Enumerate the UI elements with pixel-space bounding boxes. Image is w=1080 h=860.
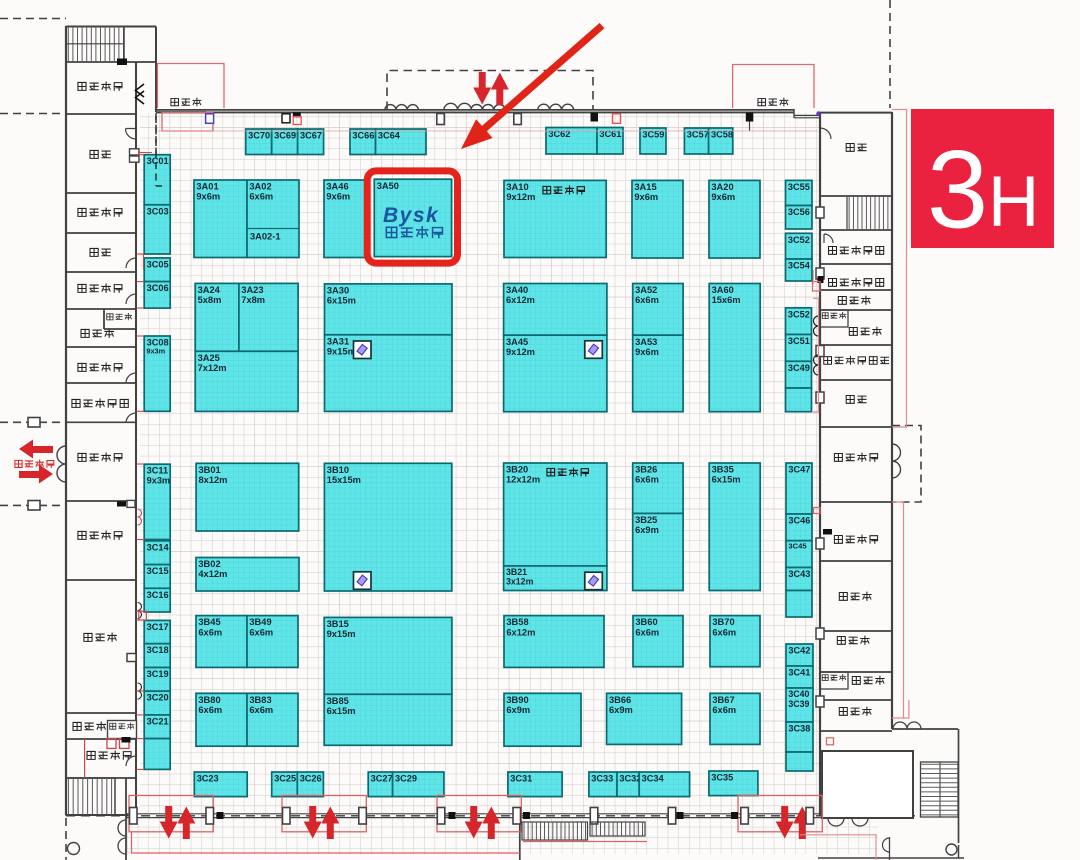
- svg-text:3C32: 3C32: [619, 774, 641, 784]
- svg-text:3C01: 3C01: [147, 156, 169, 166]
- svg-text:8x12m: 8x12m: [199, 475, 228, 485]
- svg-text:3C15: 3C15: [147, 566, 169, 576]
- svg-text:6x6m: 6x6m: [249, 705, 273, 715]
- svg-text:15x15m: 15x15m: [327, 475, 361, 485]
- svg-text:6x6m: 6x6m: [635, 627, 659, 637]
- svg-text:3B58: 3B58: [506, 617, 528, 627]
- svg-text:6x12m: 6x12m: [506, 295, 535, 305]
- svg-text:9x12m: 9x12m: [506, 192, 535, 202]
- svg-text:3B35: 3B35: [712, 465, 734, 475]
- svg-text:3A02: 3A02: [249, 182, 271, 192]
- svg-text:9x3m: 9x3m: [147, 476, 171, 486]
- svg-text:3A25: 3A25: [198, 353, 220, 363]
- svg-text:3C41: 3C41: [788, 668, 810, 678]
- svg-text:3C14: 3C14: [147, 542, 170, 552]
- svg-text:3C55: 3C55: [788, 182, 810, 192]
- svg-text:3C27: 3C27: [371, 774, 393, 784]
- svg-text:3C56: 3C56: [788, 207, 810, 217]
- svg-text:3C51: 3C51: [788, 336, 810, 346]
- svg-text:3C42: 3C42: [788, 646, 810, 656]
- svg-text:3B67: 3B67: [712, 695, 734, 705]
- svg-text:3C33: 3C33: [591, 774, 613, 784]
- svg-text:3C39: 3C39: [788, 699, 809, 709]
- svg-text:6x6m: 6x6m: [635, 295, 659, 305]
- svg-text:6x15m: 6x15m: [327, 706, 356, 716]
- svg-text:3A45: 3A45: [506, 337, 528, 347]
- svg-text:3A60: 3A60: [712, 285, 734, 295]
- svg-text:3C35: 3C35: [711, 773, 733, 783]
- svg-text:3C49: 3C49: [788, 363, 810, 373]
- svg-text:7x8m: 7x8m: [241, 295, 265, 305]
- svg-text:3C05: 3C05: [147, 259, 169, 269]
- svg-text:3C62: 3C62: [548, 129, 570, 139]
- svg-text:9x6m: 9x6m: [711, 192, 735, 202]
- svg-text:3C19: 3C19: [147, 669, 169, 679]
- svg-text:3A23: 3A23: [241, 285, 263, 295]
- svg-text:3A10: 3A10: [506, 182, 528, 192]
- svg-text:9x15m: 9x15m: [327, 629, 356, 639]
- svg-text:6x9m: 6x9m: [635, 525, 659, 535]
- svg-text:9x6m: 9x6m: [326, 192, 350, 202]
- svg-text:3C40: 3C40: [788, 689, 809, 699]
- svg-text:7x12m: 7x12m: [198, 363, 227, 373]
- svg-text:3C34: 3C34: [642, 774, 665, 784]
- svg-text:3B01: 3B01: [199, 465, 221, 475]
- svg-text:3B83: 3B83: [249, 695, 271, 705]
- svg-text:6x6m: 6x6m: [198, 627, 222, 637]
- svg-text:3B20: 3B20: [506, 465, 528, 475]
- svg-text:3A15: 3A15: [634, 182, 656, 192]
- svg-text:3: 3: [927, 129, 988, 252]
- svg-text:3C46: 3C46: [788, 516, 810, 526]
- svg-text:3B80: 3B80: [198, 695, 220, 705]
- svg-text:3C61: 3C61: [599, 129, 621, 139]
- svg-text:3B15: 3B15: [327, 619, 349, 629]
- svg-text:3C26: 3C26: [300, 774, 322, 784]
- svg-text:3C06: 3C06: [147, 283, 169, 293]
- svg-text:3B25: 3B25: [635, 515, 657, 525]
- svg-text:5x8m: 5x8m: [198, 295, 222, 305]
- svg-text:3C11: 3C11: [147, 466, 168, 476]
- svg-text:9x12m: 9x12m: [506, 347, 535, 357]
- svg-text:3x12m: 3x12m: [506, 577, 534, 587]
- svg-text:6x9m: 6x9m: [609, 705, 633, 715]
- svg-text:4x12m: 4x12m: [198, 569, 227, 579]
- svg-text:3B66: 3B66: [609, 695, 631, 705]
- svg-text:3B70: 3B70: [712, 617, 734, 627]
- svg-text:6x12m: 6x12m: [506, 627, 535, 637]
- svg-text:3C16: 3C16: [147, 590, 169, 600]
- svg-text:3A24: 3A24: [198, 285, 221, 295]
- svg-text:3B26: 3B26: [635, 465, 657, 475]
- svg-text:3A30: 3A30: [327, 286, 349, 296]
- svg-text:6x9m: 6x9m: [506, 705, 530, 715]
- svg-text:3C52: 3C52: [788, 235, 810, 245]
- svg-text:3C70: 3C70: [248, 131, 270, 141]
- svg-text:9x6m: 9x6m: [634, 192, 658, 202]
- svg-text:3A46: 3A46: [326, 182, 348, 192]
- svg-text:3C03: 3C03: [147, 206, 169, 216]
- svg-text:3C69: 3C69: [274, 131, 296, 141]
- svg-text:3C54: 3C54: [788, 261, 811, 271]
- svg-text:3A31: 3A31: [327, 336, 349, 346]
- svg-text:3A20: 3A20: [711, 182, 733, 192]
- svg-text:6x6m: 6x6m: [712, 705, 736, 715]
- svg-text:3C47: 3C47: [788, 465, 810, 475]
- svg-text:3B85: 3B85: [327, 696, 349, 706]
- svg-text:3C18: 3C18: [147, 645, 169, 655]
- svg-text:3C66: 3C66: [352, 131, 374, 141]
- svg-text:3B02: 3B02: [198, 559, 220, 569]
- svg-text:12x12m: 12x12m: [506, 475, 540, 485]
- svg-text:3A53: 3A53: [635, 337, 657, 347]
- svg-text:3A52: 3A52: [635, 285, 657, 295]
- svg-text:6x15m: 6x15m: [712, 475, 741, 485]
- svg-text:3C23: 3C23: [197, 774, 219, 784]
- svg-text:6x6m: 6x6m: [249, 192, 273, 202]
- svg-text:6x6m: 6x6m: [198, 705, 222, 715]
- svg-text:3B21: 3B21: [506, 567, 527, 577]
- svg-text:3C64: 3C64: [378, 131, 401, 141]
- svg-text:3C38: 3C38: [788, 724, 810, 734]
- svg-text:6x6m: 6x6m: [712, 627, 736, 637]
- svg-text:6x6m: 6x6m: [635, 475, 659, 485]
- svg-text:3C17: 3C17: [147, 622, 169, 632]
- svg-text:9x3m: 9x3m: [146, 347, 165, 356]
- svg-text:9x6m: 9x6m: [635, 347, 659, 357]
- svg-text:3C25: 3C25: [274, 774, 296, 784]
- svg-text:3C43: 3C43: [788, 569, 810, 579]
- svg-text:6x15m: 6x15m: [327, 296, 356, 306]
- svg-text:9x6m: 9x6m: [196, 192, 220, 202]
- svg-text:3C29: 3C29: [395, 774, 417, 784]
- svg-text:3A50: 3A50: [377, 181, 399, 191]
- svg-text:3B60: 3B60: [635, 617, 657, 627]
- svg-text:3C20: 3C20: [147, 693, 169, 703]
- svg-text:3A02-1: 3A02-1: [250, 232, 281, 242]
- svg-text:3C67: 3C67: [300, 131, 322, 141]
- svg-text:3C45: 3C45: [788, 542, 807, 551]
- svg-text:3C52: 3C52: [788, 309, 810, 319]
- svg-text:9x15m: 9x15m: [327, 347, 356, 357]
- svg-text:6x6m: 6x6m: [249, 627, 273, 637]
- svg-text:3C31: 3C31: [510, 774, 532, 784]
- svg-text:3B10: 3B10: [327, 465, 349, 475]
- svg-text:3C21: 3C21: [147, 716, 169, 726]
- svg-text:3A01: 3A01: [196, 182, 218, 192]
- svg-text:15x6m: 15x6m: [712, 295, 741, 305]
- svg-text:3B49: 3B49: [249, 617, 271, 627]
- svg-text:Bysk: Bysk: [383, 204, 439, 227]
- svg-text:H: H: [988, 163, 1039, 242]
- svg-text:3B45: 3B45: [198, 617, 220, 627]
- svg-text:3B90: 3B90: [506, 695, 528, 705]
- svg-text:3A40: 3A40: [506, 285, 528, 295]
